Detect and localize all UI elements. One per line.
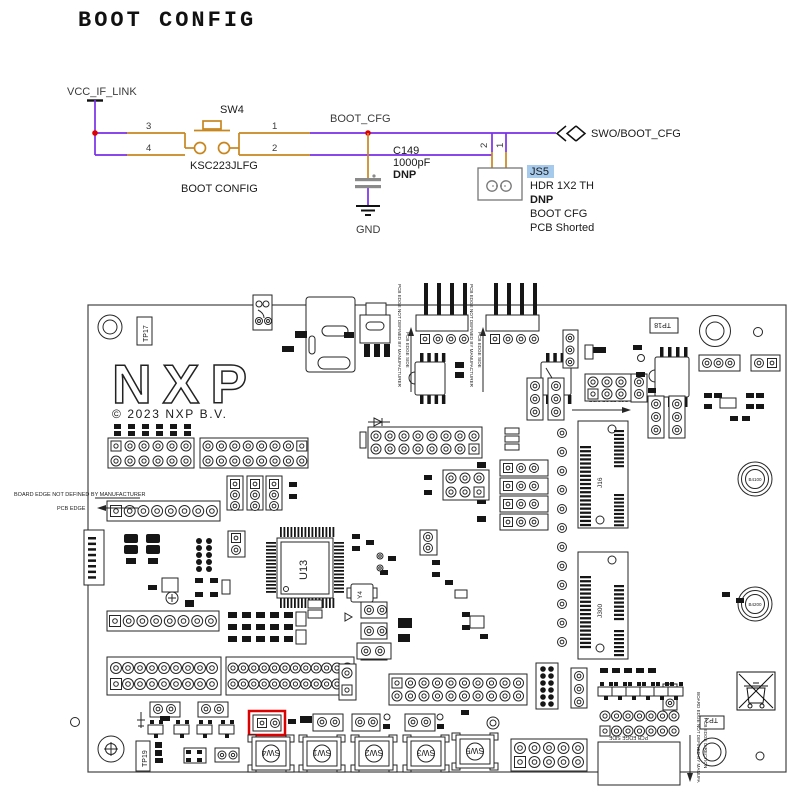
svg-text:SW1: SW1 — [313, 748, 332, 758]
pin-header-2x8-mid — [368, 427, 482, 458]
crystal-y4: Y4 — [347, 584, 377, 602]
side-connector — [84, 530, 104, 585]
jumper-js5: 2 1 JS5 HDR 1X2 TH DNP BOOT CFG PCB Shor… — [478, 143, 594, 234]
pin-header-2x6 — [108, 438, 194, 468]
pin-header-2x3 — [443, 470, 489, 500]
pin-number: 2 — [479, 143, 490, 148]
switch-sw1-board: SW1 — [299, 735, 345, 772]
power-symbol: VCC_IF_LINK — [67, 86, 137, 101]
jumper-dnp: DNP — [530, 194, 553, 206]
switch-desc: BOOT CONFIG — [181, 183, 258, 195]
offpage-net-label: SWO/BOOT_CFG — [591, 128, 681, 140]
page-title: BOOT CONFIG — [78, 8, 256, 33]
jumper-ref: JS5 — [530, 166, 549, 178]
pin-header-2x8 — [200, 438, 308, 468]
net-label-bootcfg: BOOT_CFG — [330, 113, 391, 125]
svg-text:BOARD EDGE NOT DEFINED BY MANU: BOARD EDGE NOT DEFINED BY MANUFA — [696, 692, 701, 784]
svg-text:J16: J16 — [597, 477, 604, 488]
svg-text:TP17: TP17 — [143, 325, 150, 342]
copyright: © 2023 NXP B.V. — [112, 407, 228, 421]
svg-text:SW2: SW2 — [365, 748, 384, 758]
edge-header-1x8 — [107, 501, 220, 521]
pin-header-2x10 — [389, 674, 527, 705]
switch-sw4-board: SW4 — [248, 735, 294, 772]
svg-text:PCB EDGE SIDE: PCB EDGE SIDE — [477, 332, 482, 368]
svg-text:PCB EDGE: PCB EDGE — [57, 506, 86, 512]
svg-text:SW4: SW4 — [262, 748, 281, 758]
jumper-1x2 — [228, 531, 245, 557]
pin-number: 1 — [495, 143, 506, 148]
svg-text:J300: J300 — [597, 604, 604, 618]
svg-text:B4100: B4100 — [748, 477, 762, 482]
svg-text:PCB EDGE DIRECTION: PCB EDGE DIRECTION — [703, 718, 708, 768]
pin-number: 2 — [272, 143, 277, 154]
pin-number: 3 — [146, 121, 151, 132]
jumper-note: PCB Shorted — [530, 222, 594, 234]
switch-sw3-board: SW3 — [403, 735, 449, 772]
cap-dnp: DNP — [393, 169, 416, 181]
svg-text:BOARD EDGE NOT DEFINED BY MANU: BOARD EDGE NOT DEFINED BY MANUFACTURER — [14, 492, 146, 498]
pin-number: 1 — [272, 121, 277, 132]
svg-text:PCB EDGE NOT DEFINED BY MANUFA: PCB EDGE NOT DEFINED BY MANUFACTURER — [397, 284, 402, 388]
svg-text:U13: U13 — [298, 560, 310, 580]
svg-text:TP18: TP18 — [654, 321, 671, 328]
top-connector — [253, 295, 272, 330]
junction-dot — [92, 130, 98, 136]
m2-connector-j16: J16 — [578, 421, 628, 528]
pin-header-2x12 — [226, 657, 354, 695]
net-label-vcc: VCC_IF_LINK — [67, 86, 137, 98]
m2-connector-j300: J300 — [578, 552, 628, 659]
svg-text:NXP: NXP — [112, 353, 248, 415]
pin-number: 4 — [146, 143, 151, 154]
pin-header-2x5 — [511, 739, 587, 771]
svg-text:B4200: B4200 — [748, 602, 762, 607]
jumper-part: HDR 1X2 TH — [530, 180, 594, 192]
switch-sw4: 3 4 1 2 SW4 KSC223JLFG BOOT CONFIG — [127, 104, 310, 195]
switch-ref: SW4 — [220, 104, 244, 116]
jumper-desc: BOOT CFG — [530, 208, 587, 220]
cap-ref: C149 — [393, 145, 419, 157]
svg-text:SW3: SW3 — [417, 748, 436, 758]
svg-text:PCB EDGE SIDE: PCB EDGE SIDE — [405, 332, 410, 368]
cap-value: 1000pF — [393, 157, 431, 169]
svg-text:Y4: Y4 — [357, 591, 364, 599]
svg-text:PCB EDGE NOT DEFINED BY MANUFA: PCB EDGE NOT DEFINED BY MANUFACTURER — [469, 284, 474, 388]
pcb-assembly-drawing: NXP © 2023 NXP B.V. TP17 TP18 TP19 TP2 — [0, 258, 810, 810]
cap-c149: BOOT_CFG C149 1000pF DNP GND — [330, 113, 431, 236]
header-1x3-tr — [699, 355, 780, 371]
boot-config-schematic: VCC_IF_LINK 3 4 1 2 SW4 KSC223JLFG BOOT … — [0, 80, 810, 258]
pin-header-1x8 — [107, 611, 219, 631]
svg-text:TP19: TP19 — [142, 750, 149, 767]
pin-header-2x9 — [107, 657, 221, 695]
svg-text:SW5: SW5 — [466, 746, 485, 756]
gnd-label: GND — [356, 224, 381, 236]
qfp-u13: U13 — [266, 527, 344, 608]
switch-sw5-board: SW5 — [452, 733, 498, 770]
pin-header-2x3-m2 — [585, 374, 656, 402]
nxp-logo: NXP © 2023 NXP B.V. — [112, 353, 248, 421]
offpage-connector-icon — [557, 126, 585, 141]
switch-part: KSC223JLFG — [190, 160, 258, 172]
switch-sw2-board: SW2 — [351, 735, 397, 772]
